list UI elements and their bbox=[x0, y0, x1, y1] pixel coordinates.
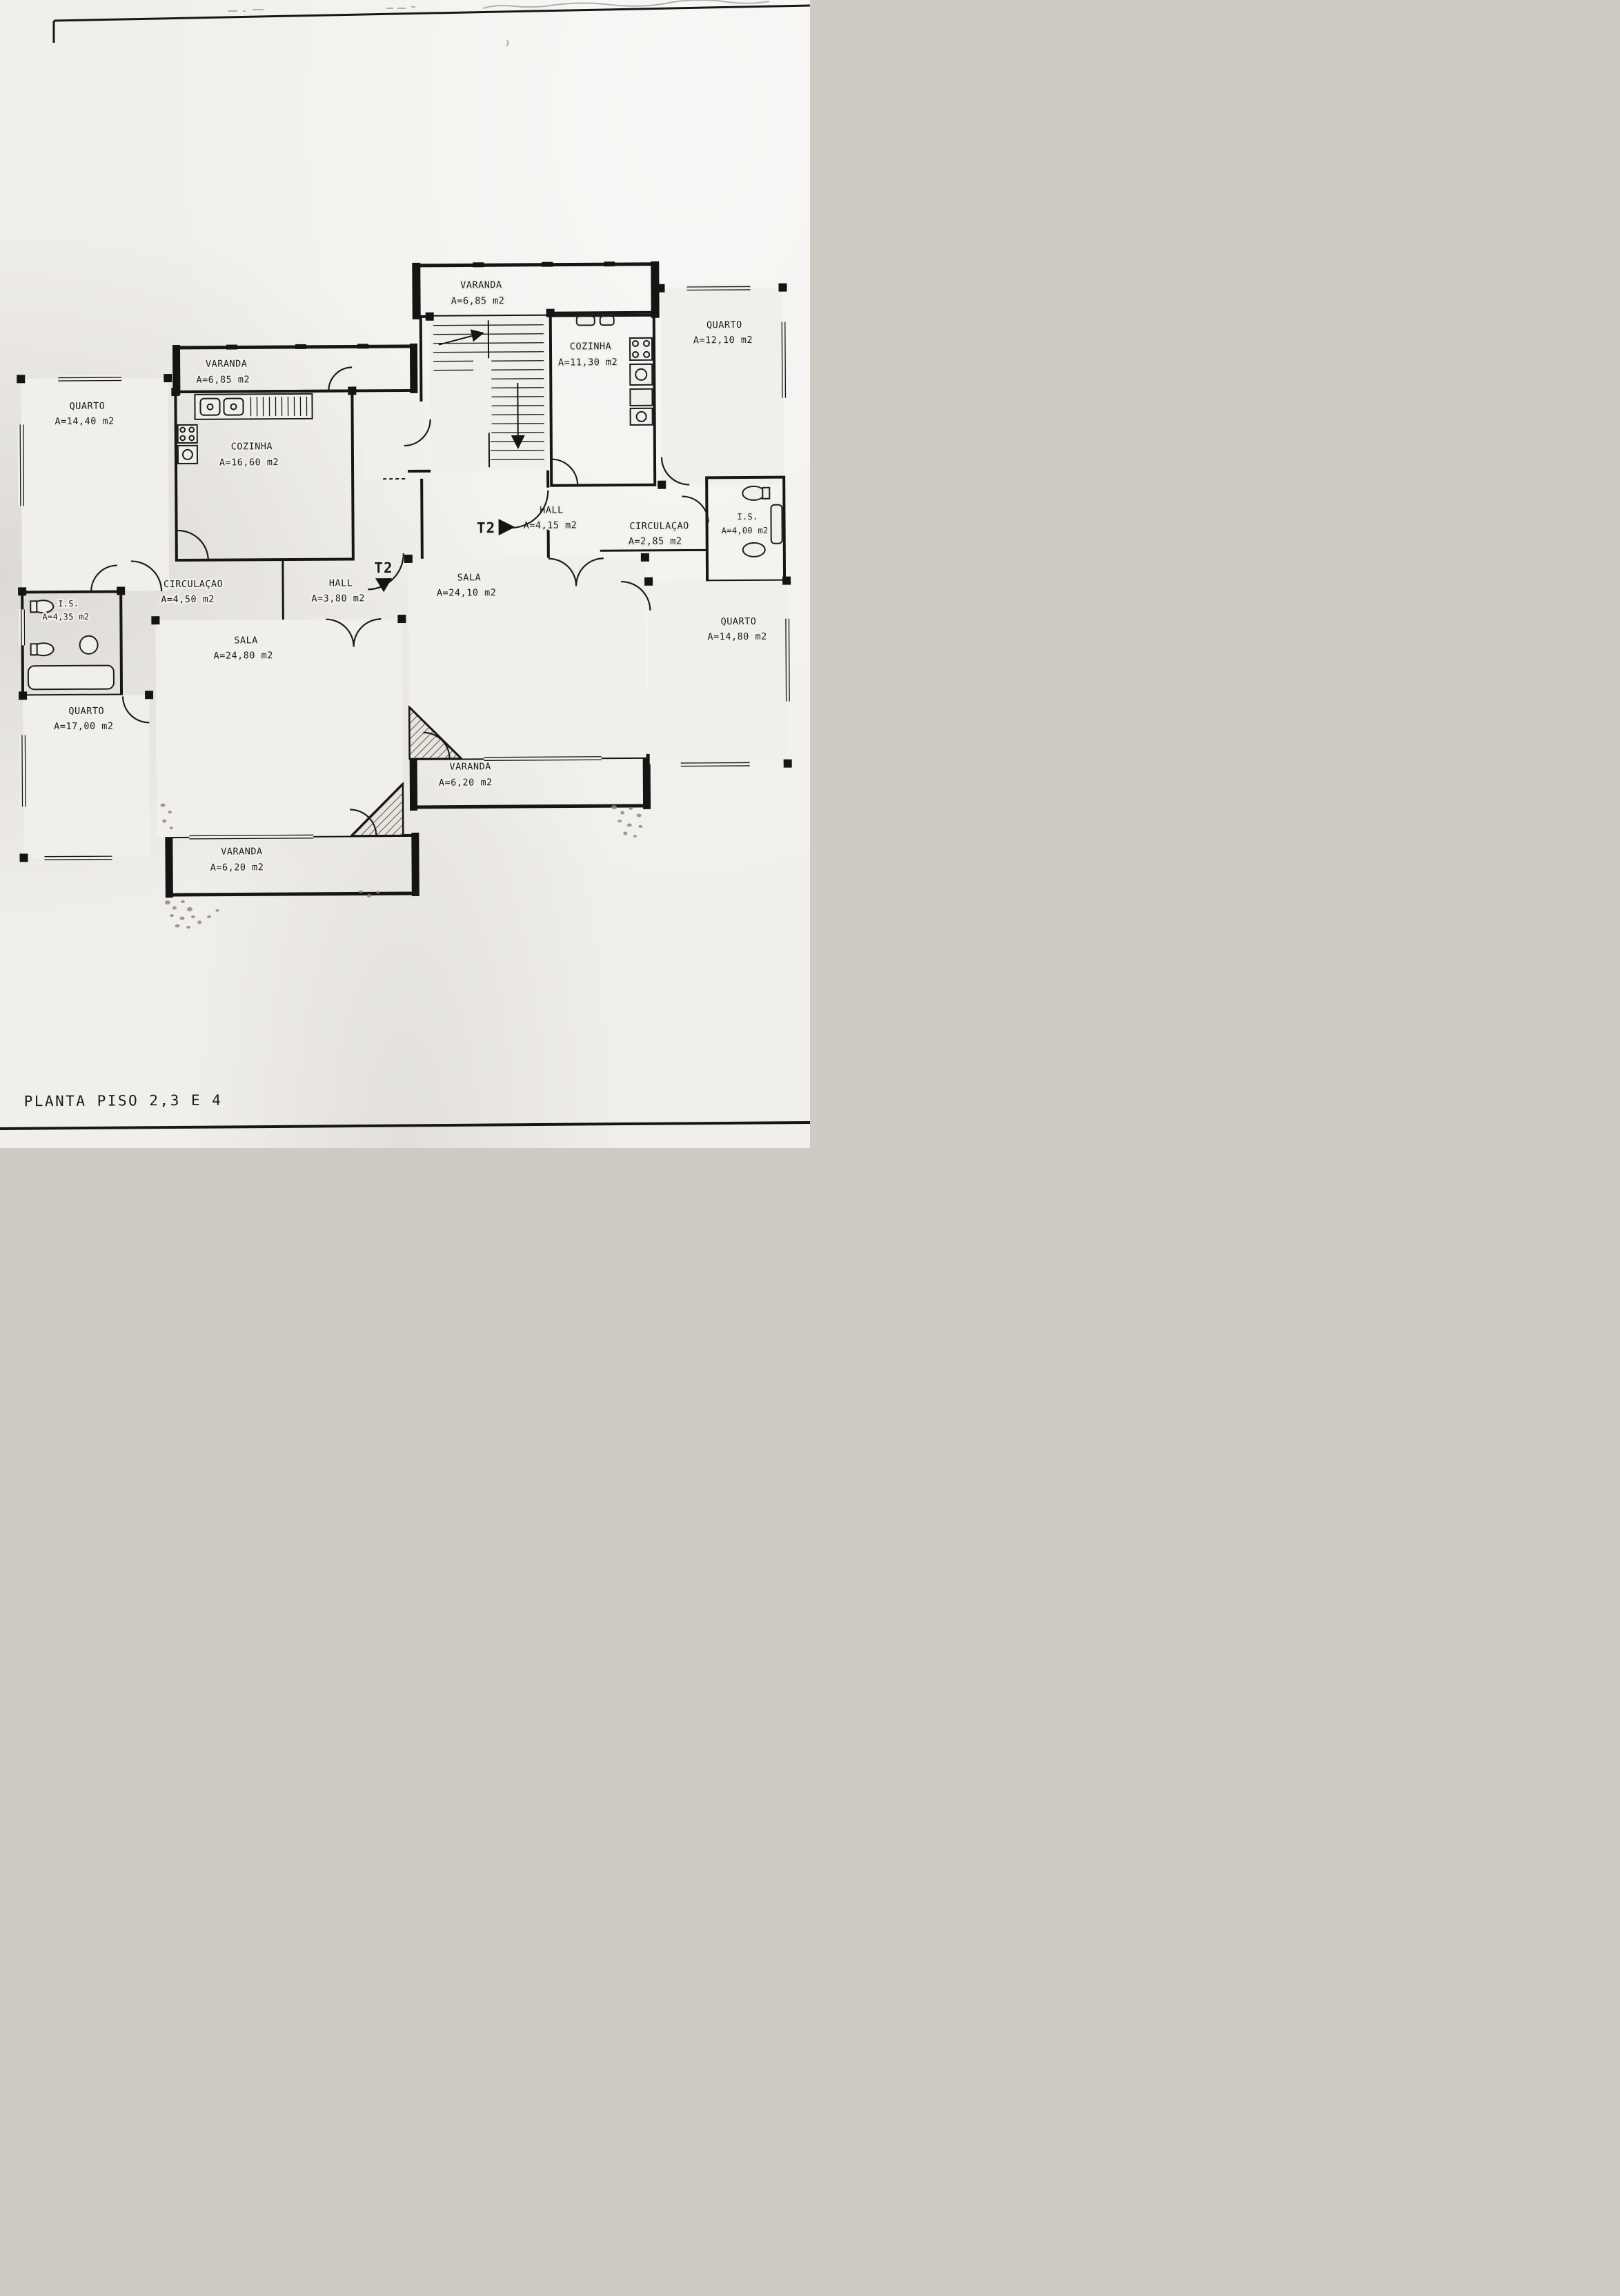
room-varanda-bottom-left-name: VARANDA bbox=[221, 846, 263, 857]
window bbox=[484, 754, 602, 762]
room-cozinha-right-area: A=11,30 m2 bbox=[558, 357, 618, 368]
room-hall-left-area: A=3,80 m2 bbox=[311, 593, 365, 604]
room-varanda-left-name: VARANDA bbox=[206, 358, 248, 369]
t2-left-marker: T2 bbox=[374, 560, 393, 592]
kitchen-sink-icon bbox=[195, 394, 312, 419]
room-sala-right: SALA A=24,10 m2 bbox=[408, 557, 646, 762]
bottom-border-line bbox=[0, 1122, 810, 1129]
stove-icon bbox=[630, 338, 652, 360]
room-cozinha-left: COZINHA A=16,60 m2 bbox=[175, 390, 353, 560]
counter-top-icon bbox=[600, 316, 614, 325]
room-varanda-bottom-left: VARANDA A=6,20 m2 bbox=[165, 833, 419, 898]
washbasin-icon bbox=[771, 505, 782, 544]
room-cozinha-right: COZINHA A=11,30 m2 bbox=[551, 313, 655, 486]
counter-top-icon bbox=[577, 316, 595, 325]
room-quarto-top-right-name: QUARTO bbox=[707, 319, 742, 330]
floor-plan-drawing: VARANDA A=6,85 m2 VARANDA A=6,85 m2 VARA… bbox=[0, 0, 810, 1148]
window bbox=[780, 322, 787, 398]
window bbox=[19, 609, 26, 645]
arrow-right-icon bbox=[499, 519, 515, 535]
room-sala-left-area: A=24,80 m2 bbox=[214, 650, 273, 662]
room-varanda-top: VARANDA A=6,85 m2 bbox=[412, 261, 659, 319]
room-quarto-top-right: QUARTO A=12,10 m2 bbox=[660, 284, 787, 485]
room-circulacao-left-area: A=4,50 m2 bbox=[161, 594, 215, 605]
window bbox=[44, 854, 112, 862]
room-quarto-right-bottom: QUARTO A=14,80 m2 bbox=[649, 581, 791, 768]
room-quarto-top-right-area: A=12,10 m2 bbox=[693, 335, 753, 346]
washbasin-icon bbox=[80, 636, 98, 654]
room-is-right: I.S. A=4,00 m2 bbox=[707, 477, 784, 582]
room-quarto-left-bottom: QUARTO A=17,00 m2 bbox=[19, 695, 150, 861]
room-varanda-bottom-right-name: VARANDA bbox=[449, 761, 491, 772]
t2-left-label: T2 bbox=[374, 560, 393, 576]
room-varanda-bottom-right: VARANDA A=6,20 m2 bbox=[410, 754, 651, 811]
t2-right-marker: T2 bbox=[477, 519, 515, 536]
room-sala-left-name: SALA bbox=[234, 635, 258, 646]
room-quarto-right-bottom-area: A=14,80 m2 bbox=[707, 631, 767, 643]
room-quarto-left-area: A=14,40 m2 bbox=[55, 416, 114, 428]
room-is-left-area: A=4,35 m2 bbox=[42, 612, 89, 622]
room-circulacao-right-area: A=2,85 m2 bbox=[629, 536, 682, 547]
room-cozinha-right-name: COZINHA bbox=[570, 341, 612, 352]
room-cozinha-left-area: A=16,60 m2 bbox=[219, 457, 279, 468]
room-quarto-left-bottom-name: QUARTO bbox=[68, 706, 104, 717]
bathtub-icon bbox=[28, 666, 114, 690]
window bbox=[686, 284, 750, 292]
toilet-icon bbox=[30, 600, 53, 613]
room-is-right-name: I.S. bbox=[737, 512, 758, 522]
room-is-left: I.S. A=4,35 m2 bbox=[19, 592, 121, 696]
kitchen-sink-icon bbox=[630, 364, 652, 385]
window bbox=[681, 760, 750, 768]
room-sala-right-area: A=24,10 m2 bbox=[437, 587, 496, 599]
window bbox=[189, 833, 313, 840]
room-quarto-right-bottom-name: QUARTO bbox=[720, 616, 756, 627]
window bbox=[18, 424, 26, 506]
room-varanda-bottom-left-area: A=6,20 m2 bbox=[210, 862, 264, 873]
room-circulacao-left-name: CIRCULAÇAO bbox=[164, 579, 223, 591]
window bbox=[58, 375, 121, 383]
room-sala-right-name: SALA bbox=[457, 572, 482, 583]
room-varanda-left-area: A=6,85 m2 bbox=[196, 374, 250, 385]
t2-right-label: T2 bbox=[477, 519, 495, 536]
stove-icon bbox=[178, 425, 197, 464]
stairwell bbox=[430, 316, 548, 471]
room-varanda-bottom-right-area: A=6,20 m2 bbox=[439, 777, 493, 788]
room-varanda-top-name: VARANDA bbox=[460, 279, 502, 290]
window bbox=[783, 619, 791, 702]
room-is-right-area: A=4,00 m2 bbox=[722, 526, 769, 535]
plan-title: PLANTA PISO 2,3 E 4 bbox=[24, 1092, 223, 1110]
top-border-line bbox=[54, 6, 810, 21]
room-varanda-left: VARANDA A=6,85 m2 bbox=[172, 344, 417, 395]
plan: VARANDA A=6,85 m2 VARANDA A=6,85 m2 VARA… bbox=[16, 261, 793, 1110]
room-varanda-top-area: A=6,85 m2 bbox=[451, 295, 505, 306]
room-circulacao-right-name: CIRCULAÇAO bbox=[629, 520, 689, 532]
room-sala-left: SALA A=24,80 m2 bbox=[155, 619, 403, 840]
room-cozinha-left-name: COZINHA bbox=[231, 441, 273, 452]
scanned-floor-plan-page: VARANDA A=6,85 m2 VARANDA A=6,85 m2 VARA… bbox=[0, 0, 810, 1148]
room-quarto-left: QUARTO A=14,40 m2 bbox=[17, 375, 169, 591]
room-quarto-left-bottom-area: A=17,00 m2 bbox=[54, 721, 113, 733]
elevator bbox=[364, 402, 423, 479]
window bbox=[19, 735, 27, 806]
room-is-left-name: I.S. bbox=[58, 599, 79, 608]
arrow-down-icon bbox=[375, 578, 392, 592]
bidet-icon bbox=[31, 643, 54, 655]
bidet-icon bbox=[743, 543, 765, 557]
toilet-icon bbox=[742, 486, 769, 500]
counter-icon bbox=[630, 389, 652, 425]
room-hall-left-name: HALL bbox=[329, 577, 353, 588]
room-quarto-left-name: QUARTO bbox=[70, 401, 106, 412]
